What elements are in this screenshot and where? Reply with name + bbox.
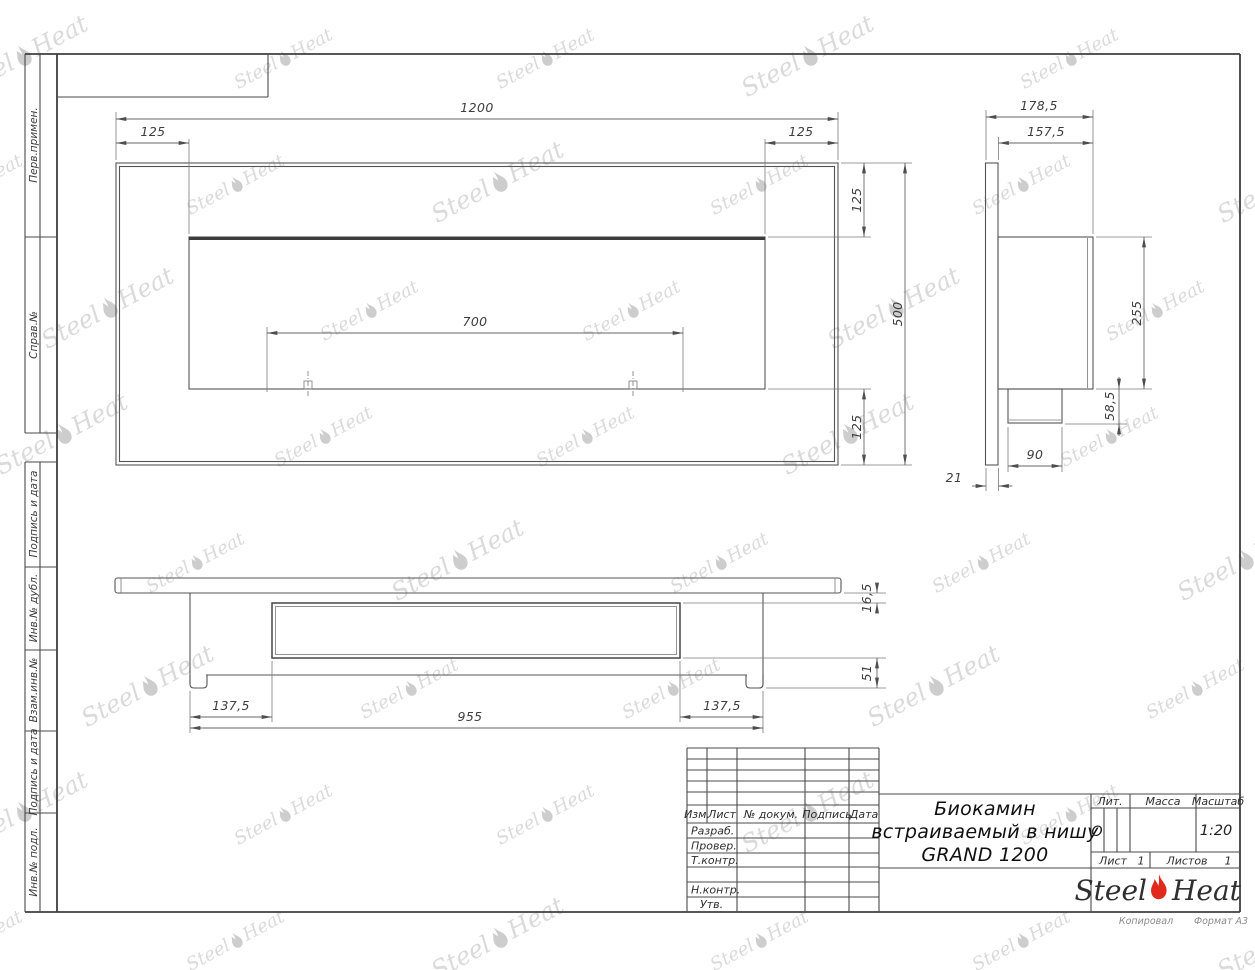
svg-text:Steel: Steel — [1172, 551, 1241, 606]
watermark: SteelHeat — [0, 8, 93, 102]
svg-text:Heat: Heat — [501, 134, 569, 188]
svg-text:Heat: Heat — [151, 638, 219, 692]
sheet-frame — [25, 54, 1240, 912]
dim-front-height: 500 — [890, 301, 905, 326]
svg-text:Heat: Heat — [1198, 654, 1249, 694]
svg-text:Heat: Heat — [984, 528, 1035, 568]
svg-text:Heat: Heat — [588, 402, 639, 442]
svg-text:Steel: Steel — [822, 299, 891, 354]
svg-text:Steel: Steel — [1212, 929, 1255, 970]
lit-value: О — [1091, 824, 1102, 840]
watermark: SteelHeat — [579, 276, 685, 346]
label-inv-dubl: Инв.№ дубл. — [28, 574, 40, 643]
svg-text:Steel: Steel — [231, 809, 282, 850]
watermark: SteelHeat — [76, 638, 219, 732]
dim-side-box-width: 90 — [1027, 447, 1044, 462]
watermark: SteelHeat — [0, 386, 133, 480]
svg-text:Heat: Heat — [65, 386, 133, 440]
dim-side-box-height: 58,5 — [1102, 391, 1117, 420]
drawing-svg: SteelHeatSteelHeatSteelHeatSteelHeatStee… — [0, 0, 1255, 970]
drawing-sheet: SteelHeatSteelHeatSteelHeatSteelHeatStee… — [0, 0, 1255, 970]
dim-side-depth-total: 178,5 — [1020, 98, 1058, 113]
watermark: SteelHeat — [667, 528, 773, 598]
label-podpis-data-2: Подпись и дата — [28, 729, 40, 816]
svg-text:Heat: Heat — [722, 528, 773, 568]
col-data: Дата — [849, 808, 879, 821]
dim-front-width: 1200 — [460, 100, 493, 115]
watermark: SteelHeat — [493, 780, 599, 850]
svg-text:Heat: Heat — [548, 780, 599, 820]
copied-note: Копировал — [1119, 916, 1173, 927]
svg-text:Steel: Steel — [619, 683, 670, 724]
svg-text:Steel: Steel — [1143, 683, 1194, 724]
col-list: Лист — [707, 808, 736, 821]
dim-top-inset-right: 137,5 — [703, 698, 741, 713]
dim-side-flange: 21 — [946, 470, 963, 485]
watermark: SteelHeat — [1143, 654, 1249, 724]
svg-text:Steel: Steel — [271, 431, 322, 472]
brand-logo: Steel Heat — [1074, 874, 1241, 907]
watermark: SteelHeat — [1017, 24, 1123, 94]
svg-text:Steel: Steel — [1017, 53, 1068, 94]
svg-text:Steel: Steel — [862, 677, 931, 732]
svg-text:Heat: Heat — [501, 890, 569, 944]
doc-title-line1: Биокамин — [934, 798, 1036, 820]
svg-text:Steel: Steel — [317, 305, 368, 346]
sheets-label: Листов — [1165, 855, 1207, 868]
svg-text:Heat: Heat — [1024, 150, 1075, 190]
dim-side-body-height: 255 — [1129, 300, 1144, 325]
watermark: SteelHeat — [143, 528, 249, 598]
svg-text:Steel: Steel — [76, 677, 145, 732]
watermark: SteelHeat — [619, 654, 725, 724]
svg-text:Steel: Steel — [579, 305, 630, 346]
massa-label: Масса — [1145, 795, 1180, 808]
side-view — [986, 163, 1094, 465]
dim-front-inset-right: 125 — [788, 124, 813, 139]
svg-text:Heat: Heat — [412, 654, 463, 694]
lit-label: Лит. — [1096, 795, 1122, 808]
svg-text:Heat: Heat — [461, 512, 529, 566]
sheet-label: Лист — [1098, 855, 1127, 868]
watermark: SteelHeat — [231, 780, 337, 850]
watermark: SteelHeat — [776, 386, 919, 480]
watermark: SteelHeat — [929, 528, 1035, 598]
watermark: SteelHeat — [969, 906, 1075, 970]
svg-text:Heat: Heat — [634, 276, 685, 316]
watermark: SteelHeat — [1103, 276, 1209, 346]
row-tkontr: Т.контр. — [691, 854, 739, 867]
dim-top-step: 16,5 — [859, 583, 874, 612]
col-podpis: Подпись — [802, 808, 851, 821]
svg-text:Heat: Heat — [0, 906, 27, 946]
title-block-text: Изм. Лист № докум. Подпись Дата Разраб. … — [684, 795, 1248, 927]
doc-title-line2: встраиваемый в нишу — [871, 821, 1099, 843]
svg-text:Heat: Heat — [548, 24, 599, 64]
dim-top-body-width: 955 — [457, 709, 482, 724]
svg-text:Steel: Steel — [736, 47, 805, 102]
svg-text:Heat: Heat — [111, 260, 179, 314]
dim-front-inset-top: 125 — [849, 187, 864, 212]
svg-text:Steel: Steel — [969, 179, 1020, 220]
brand-heat: Heat — [1171, 874, 1242, 907]
dim-top-inset-left: 137,5 — [212, 698, 250, 713]
row-razrab: Разраб. — [691, 825, 734, 838]
svg-text:Steel: Steel — [386, 551, 455, 606]
watermark: SteelHeat — [183, 150, 289, 220]
watermark: SteelHeat — [426, 134, 569, 228]
watermark: SteelHeat — [0, 906, 27, 970]
watermark: SteelHeat — [317, 276, 423, 346]
svg-text:Steel: Steel — [0, 47, 19, 102]
dim-top-lower: 51 — [859, 665, 874, 682]
format-note: Формат А3 — [1194, 916, 1248, 927]
svg-text:Steel: Steel — [143, 557, 194, 598]
dim-side-depth-body: 157,5 — [1027, 124, 1065, 139]
svg-text:Steel: Steel — [707, 179, 758, 220]
svg-text:Steel: Steel — [183, 179, 234, 220]
watermark: SteelHeat — [183, 906, 289, 970]
svg-text:Steel: Steel — [493, 53, 544, 94]
svg-text:Heat: Heat — [238, 150, 289, 190]
svg-text:Steel: Steel — [493, 809, 544, 850]
flame-icon — [1151, 874, 1167, 899]
col-ndok: № докум. — [743, 808, 798, 821]
svg-text:Steel: Steel — [0, 803, 19, 858]
svg-text:Heat: Heat — [0, 150, 27, 190]
sheets-value: 1 — [1225, 855, 1232, 868]
svg-text:Steel: Steel — [969, 935, 1020, 970]
watermark: SteelHeat — [357, 654, 463, 724]
watermark: SteelHeat — [1172, 512, 1255, 606]
dim-front-slot: 700 — [462, 314, 487, 329]
watermark: SteelHeat — [1212, 134, 1255, 228]
svg-text:Heat: Heat — [286, 24, 337, 64]
label-vzam-inv: Взам.инв.№ — [28, 658, 40, 723]
watermark: SteelHeat — [0, 764, 93, 858]
watermark: SteelHeat — [862, 638, 1005, 732]
row-utv: Утв. — [700, 898, 723, 911]
svg-text:Heat: Heat — [1072, 24, 1123, 64]
watermark: SteelHeat — [736, 8, 879, 102]
doc-title-line3: GRAND 1200 — [921, 844, 1048, 866]
svg-text:Heat: Heat — [372, 276, 423, 316]
watermark: SteelHeat — [0, 150, 27, 220]
svg-text:Steel: Steel — [533, 431, 584, 472]
svg-text:Steel: Steel — [183, 935, 234, 970]
dim-front-inset-bottom: 125 — [849, 414, 864, 439]
scale-label: Масштаб — [1192, 795, 1244, 808]
watermark: SteelHeat — [707, 150, 813, 220]
svg-text:Steel: Steel — [231, 53, 282, 94]
svg-text:Heat: Heat — [674, 654, 725, 694]
svg-text:Steel: Steel — [929, 557, 980, 598]
svg-text:Heat: Heat — [1112, 402, 1163, 442]
brand-steel: Steel — [1074, 874, 1147, 907]
watermark: SteelHeat — [969, 150, 1075, 220]
svg-text:Steel: Steel — [667, 557, 718, 598]
svg-text:Steel: Steel — [426, 173, 495, 228]
svg-text:Heat: Heat — [1158, 276, 1209, 316]
svg-text:Steel: Steel — [357, 683, 408, 724]
svg-text:Heat: Heat — [286, 780, 337, 820]
row-prover: Провер. — [691, 840, 737, 853]
label-inv-podl: Инв.№ подл. — [28, 827, 40, 896]
watermark: SteelHeat — [707, 906, 813, 970]
frame-side-labels: Перв.примен. Справ.№ Подпись и дата Инв.… — [28, 107, 40, 896]
watermark: SteelHeat — [231, 24, 337, 94]
svg-text:Heat: Heat — [937, 638, 1005, 692]
svg-text:Heat: Heat — [897, 260, 965, 314]
label-perv-primen: Перв.примен. — [28, 107, 40, 182]
label-sprav-no: Справ.№ — [28, 311, 40, 359]
dim-front-inset-left: 125 — [140, 124, 165, 139]
sheet-value: 1 — [1138, 855, 1145, 868]
svg-text:Steel: Steel — [1057, 431, 1108, 472]
scale-value: 1:20 — [1200, 823, 1233, 839]
svg-text:Steel: Steel — [1212, 173, 1255, 228]
svg-text:Steel: Steel — [707, 935, 758, 970]
svg-text:Heat: Heat — [762, 150, 813, 190]
svg-text:Heat: Heat — [326, 402, 377, 442]
label-podpis-data-1: Подпись и дата — [28, 471, 40, 558]
watermark: SteelHeat — [493, 24, 599, 94]
top-view — [115, 578, 841, 688]
svg-text:Steel: Steel — [36, 299, 105, 354]
col-izm: Изм. — [684, 808, 710, 821]
watermark: SteelHeat — [426, 890, 569, 970]
svg-text:Steel: Steel — [426, 929, 495, 970]
row-nkontr: Н.контр. — [691, 884, 740, 897]
svg-text:Heat: Heat — [198, 528, 249, 568]
